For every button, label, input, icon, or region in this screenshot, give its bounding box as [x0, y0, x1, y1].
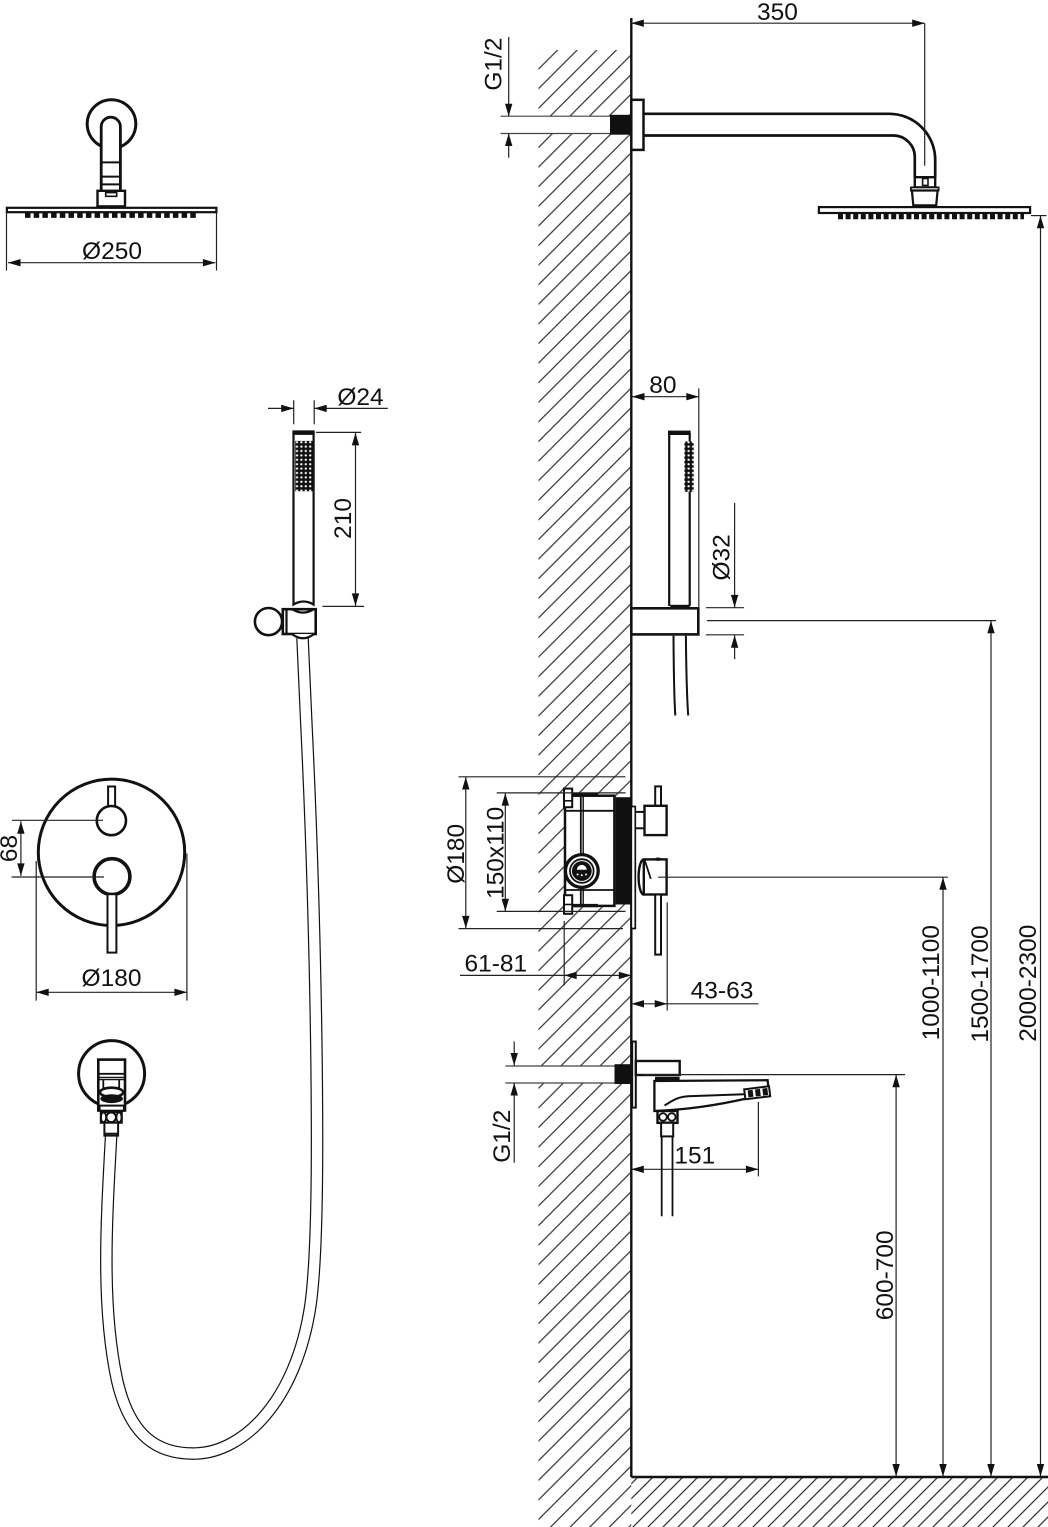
- svg-text:68: 68: [0, 835, 23, 862]
- svg-text:350: 350: [757, 0, 798, 26]
- svg-text:151: 151: [674, 1143, 715, 1170]
- svg-text:2000-2300: 2000-2300: [1015, 925, 1042, 1042]
- svg-text:Ø180: Ø180: [443, 824, 470, 884]
- svg-text:G1/2: G1/2: [489, 1110, 516, 1163]
- svg-text:80: 80: [649, 372, 676, 399]
- svg-text:150x110: 150x110: [482, 807, 509, 899]
- svg-text:Ø32: Ø32: [709, 534, 736, 580]
- svg-text:600-700: 600-700: [872, 1230, 899, 1320]
- svg-text:1500-1700: 1500-1700: [967, 925, 994, 1042]
- svg-text:43-63: 43-63: [691, 977, 754, 1004]
- svg-text:210: 210: [330, 498, 357, 539]
- svg-text:61-81: 61-81: [464, 950, 527, 977]
- svg-text:Ø180: Ø180: [82, 965, 142, 992]
- svg-text:1000-1100: 1000-1100: [918, 925, 945, 1040]
- svg-text:Ø24: Ø24: [337, 384, 383, 411]
- svg-text:G1/2: G1/2: [481, 38, 508, 91]
- svg-text:Ø250: Ø250: [82, 238, 142, 265]
